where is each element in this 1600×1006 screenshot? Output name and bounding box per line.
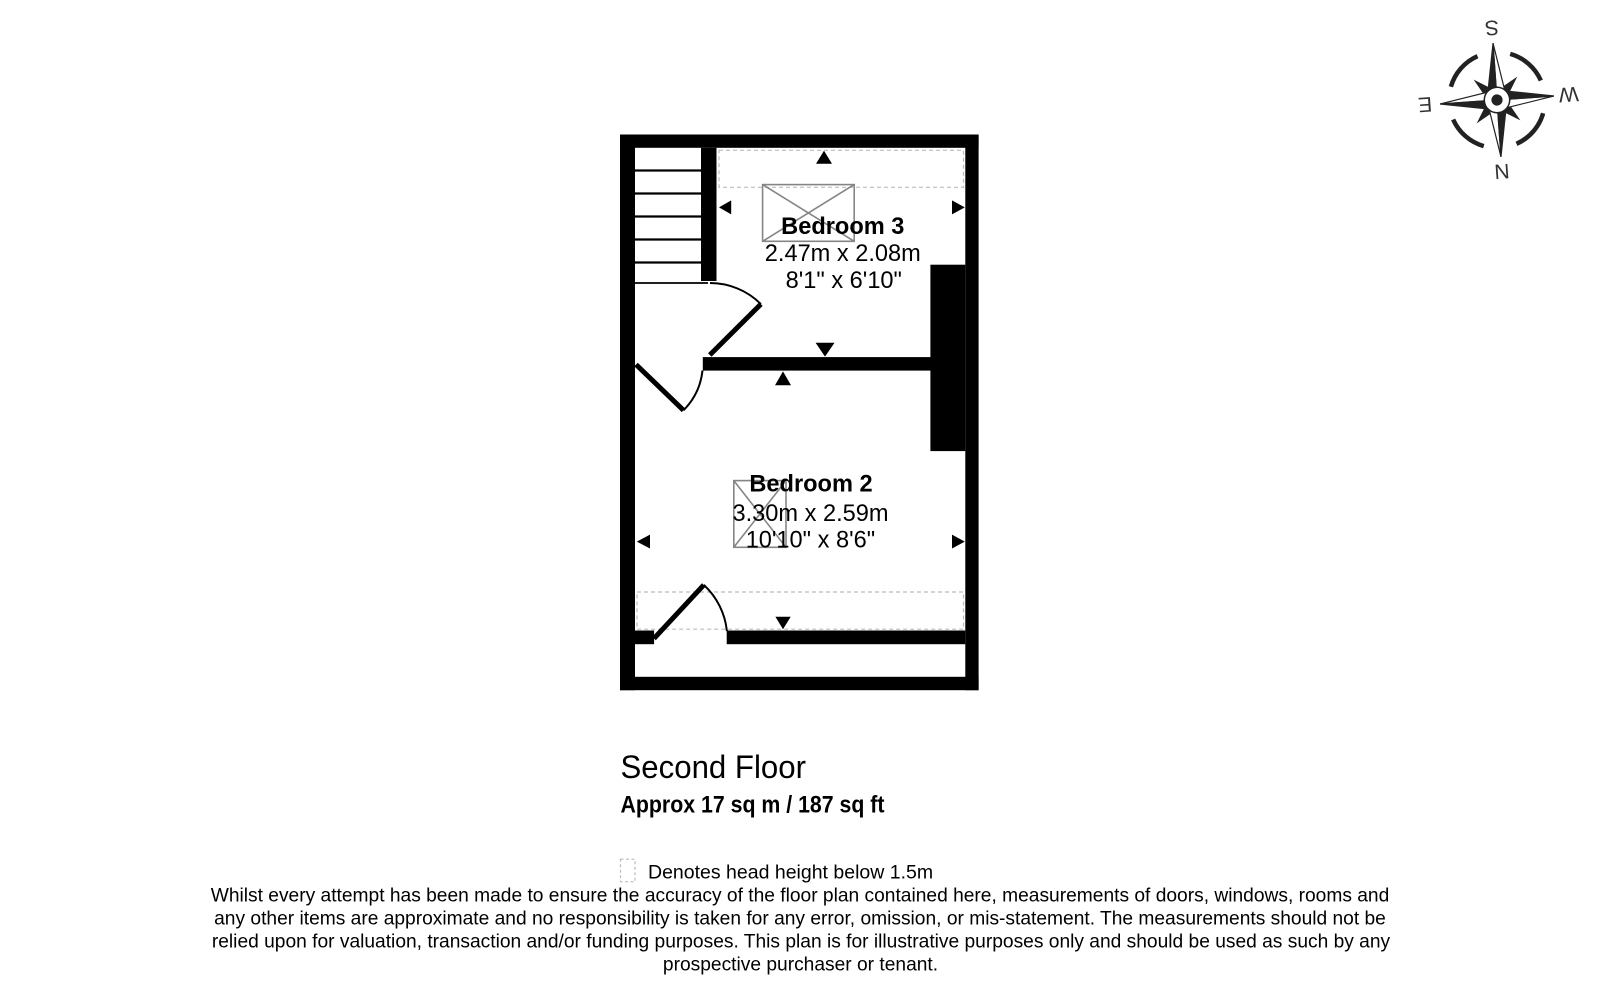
svg-text:8'1" x 6'10": 8'1" x 6'10" bbox=[786, 268, 902, 294]
svg-text:Second Floor: Second Floor bbox=[621, 749, 807, 785]
svg-text:Whilst every attempt has been: Whilst every attempt has been made to en… bbox=[211, 886, 1390, 907]
svg-text:relied upon for valuation, tra: relied upon for valuation, transaction a… bbox=[212, 931, 1391, 952]
svg-text:E: E bbox=[1417, 92, 1433, 116]
svg-text:S: S bbox=[1484, 15, 1500, 39]
svg-text:W: W bbox=[1558, 82, 1580, 106]
svg-text:2.47m x 2.08m: 2.47m x 2.08m bbox=[765, 241, 921, 267]
svg-text:N: N bbox=[1494, 159, 1511, 183]
svg-text:3.30m x 2.59m: 3.30m x 2.59m bbox=[732, 501, 888, 527]
svg-text:10'10" x 8'6": 10'10" x 8'6" bbox=[746, 527, 875, 553]
svg-text:Bedroom 3: Bedroom 3 bbox=[781, 214, 904, 240]
svg-text:any other items are approximat: any other items are approximate and no r… bbox=[214, 909, 1386, 930]
svg-text:Bedroom 2: Bedroom 2 bbox=[749, 471, 872, 497]
svg-text:prospective purchaser or tenan: prospective purchaser or tenant. bbox=[663, 954, 938, 975]
svg-text:Denotes head height below 1.5m: Denotes head height below 1.5m bbox=[648, 861, 933, 883]
svg-text:Approx 17 sq m / 187 sq ft: Approx 17 sq m / 187 sq ft bbox=[621, 792, 885, 819]
